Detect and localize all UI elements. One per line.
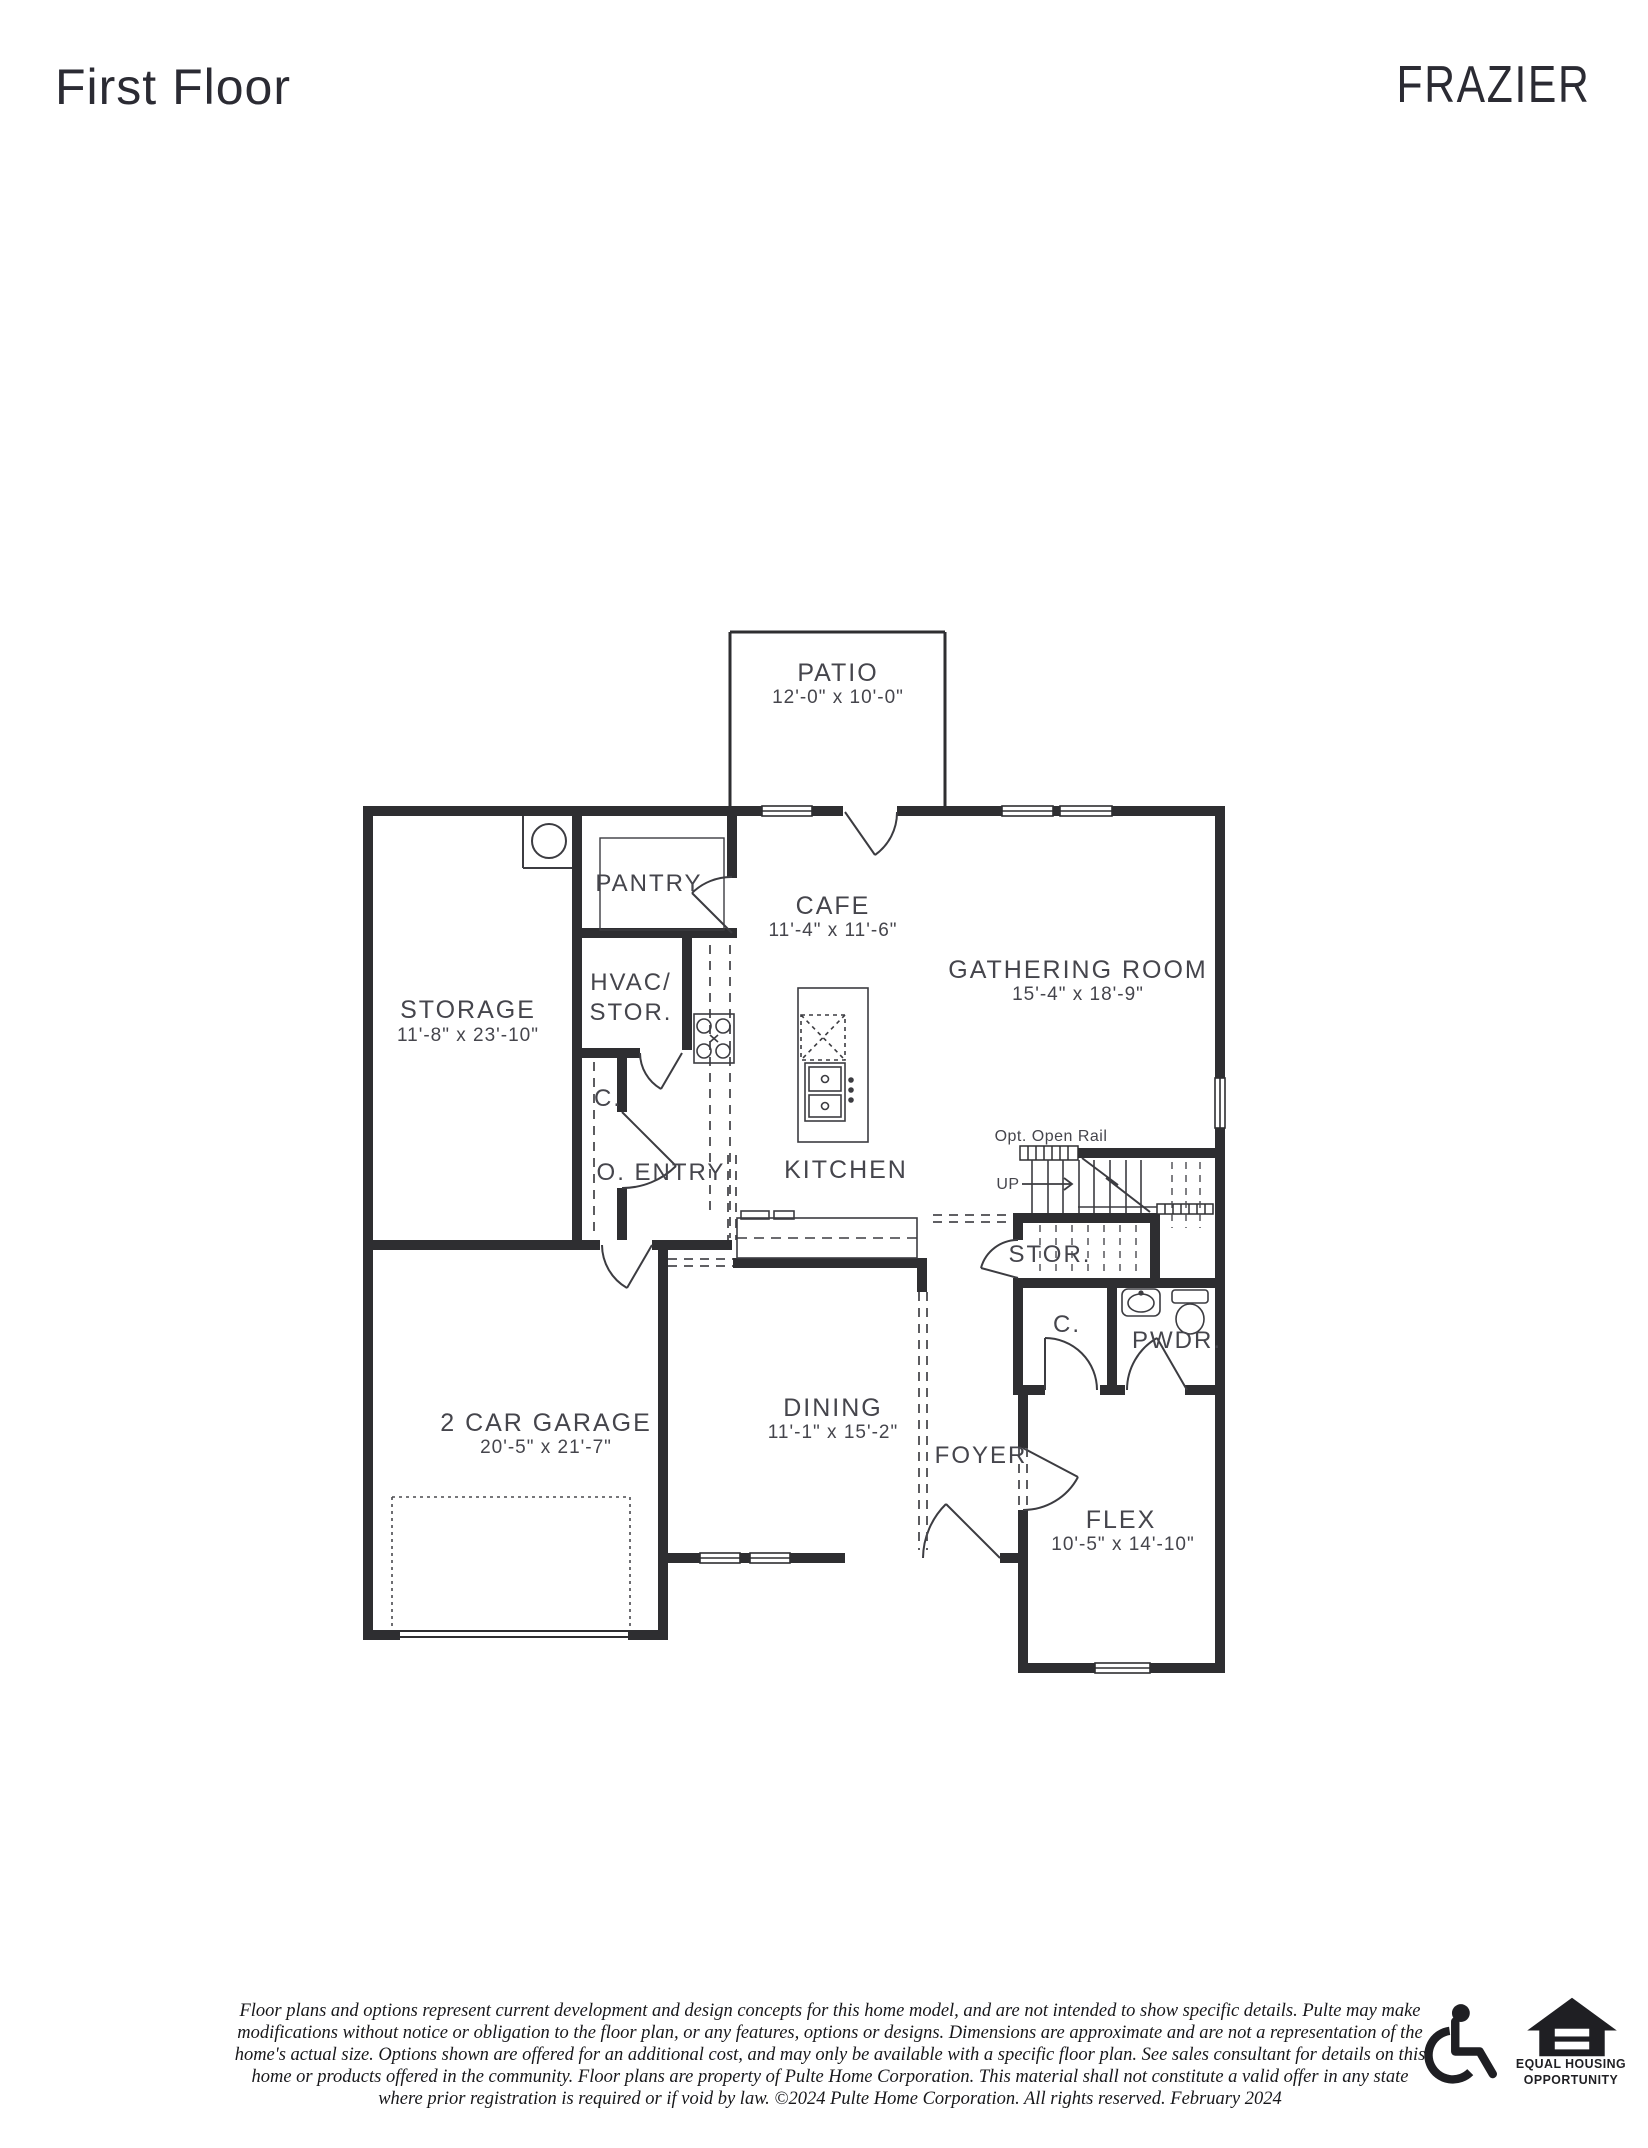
flex-dims: 10'-5" x 14'-10" bbox=[1051, 1534, 1194, 1555]
understair-storage-label: STOR. bbox=[1009, 1241, 1092, 1268]
window bbox=[700, 1553, 740, 1563]
range-cooktop bbox=[694, 1014, 734, 1063]
pantry-label: PANTRY bbox=[595, 870, 702, 897]
open-rail-note: Opt. Open Rail bbox=[995, 1128, 1108, 1145]
gathering-room-dims: 15'-4" x 18'-9" bbox=[1012, 984, 1144, 1005]
window bbox=[1002, 806, 1053, 816]
kitchen-fixtures bbox=[523, 816, 917, 1258]
disclaimer-line: home's actual size. Options shown are of… bbox=[170, 2044, 1490, 2066]
up-label: UP bbox=[996, 1176, 1019, 1193]
stair-break-line bbox=[1082, 1158, 1150, 1212]
kitchen-counter bbox=[737, 1211, 917, 1258]
up-arrow bbox=[1022, 1178, 1072, 1190]
patio-dims: 12'-0" x 10'-0" bbox=[772, 687, 904, 708]
patio-door bbox=[845, 812, 897, 855]
window bbox=[1215, 1078, 1225, 1128]
disclaimer-line: modifications without notice or obligati… bbox=[170, 2022, 1490, 2044]
equal-housing-icon bbox=[1520, 1996, 1624, 2058]
floor-plan-page: First Floor FRAZIER bbox=[0, 0, 1648, 2148]
equal-housing-label: EQUAL HOUSING OPPORTUNITY bbox=[1505, 2056, 1636, 2088]
storage-dims: 11'-8" x 23'-10" bbox=[397, 1025, 539, 1046]
garage-clearance-dashed bbox=[392, 1497, 630, 1628]
hvac-label-1: HVAC/ bbox=[590, 969, 672, 996]
flex-label: FLEX bbox=[1086, 1506, 1157, 1534]
disclaimer-line: home or products offered in the communit… bbox=[170, 2066, 1490, 2088]
wheelchair-accessible-icon bbox=[1414, 2002, 1504, 2086]
gathering-room-label: GATHERING ROOM bbox=[948, 956, 1207, 984]
water-heater bbox=[523, 816, 572, 868]
cafe-dims: 11'-4" x 11'-6" bbox=[768, 920, 897, 941]
garage-entry-door bbox=[602, 1245, 652, 1288]
hall-closet-label: C. bbox=[594, 1085, 622, 1112]
cafe-label: CAFE bbox=[796, 892, 871, 920]
sink bbox=[1122, 1289, 1160, 1316]
patio-label: PATIO bbox=[797, 659, 878, 687]
window bbox=[762, 806, 812, 816]
disclaimer-line: where prior registration is required or … bbox=[170, 2088, 1490, 2110]
foyer-closet-label: C. bbox=[1053, 1311, 1081, 1338]
powder-label: PWDR. bbox=[1132, 1327, 1222, 1354]
garage-dims: 20'-5" x 21'-7" bbox=[480, 1437, 612, 1458]
garage-door bbox=[398, 1631, 630, 1637]
disclaimer-line: Floor plans and options represent curren… bbox=[170, 2000, 1490, 2022]
storage-label: STORAGE bbox=[400, 996, 536, 1024]
garage-label: 2 CAR GARAGE bbox=[440, 1409, 652, 1437]
hvac-label-2: STOR. bbox=[590, 999, 673, 1026]
dining-label: DINING bbox=[783, 1394, 883, 1422]
window bbox=[1060, 806, 1112, 816]
floor-plan-drawing: PATIO 12'-0" x 10'-0" CAFE 11'-4" x 11'-… bbox=[0, 0, 1648, 2148]
owner-entry-label: O. ENTRY bbox=[597, 1159, 726, 1186]
window bbox=[750, 1553, 790, 1563]
foyer-closet-door bbox=[1045, 1338, 1097, 1390]
island-sink bbox=[805, 1063, 853, 1121]
window bbox=[1095, 1663, 1150, 1673]
kitchen-label: KITCHEN bbox=[784, 1156, 908, 1184]
foyer-label: FOYER bbox=[935, 1442, 1028, 1469]
flex-door bbox=[1023, 1448, 1078, 1510]
front-door bbox=[923, 1504, 1000, 1558]
disclaimer-text: Floor plans and options represent curren… bbox=[170, 2000, 1490, 2110]
hvac-door bbox=[640, 1053, 682, 1089]
dining-dims: 11'-1" x 15'-2" bbox=[768, 1422, 898, 1443]
kitchen-island bbox=[798, 988, 868, 1142]
